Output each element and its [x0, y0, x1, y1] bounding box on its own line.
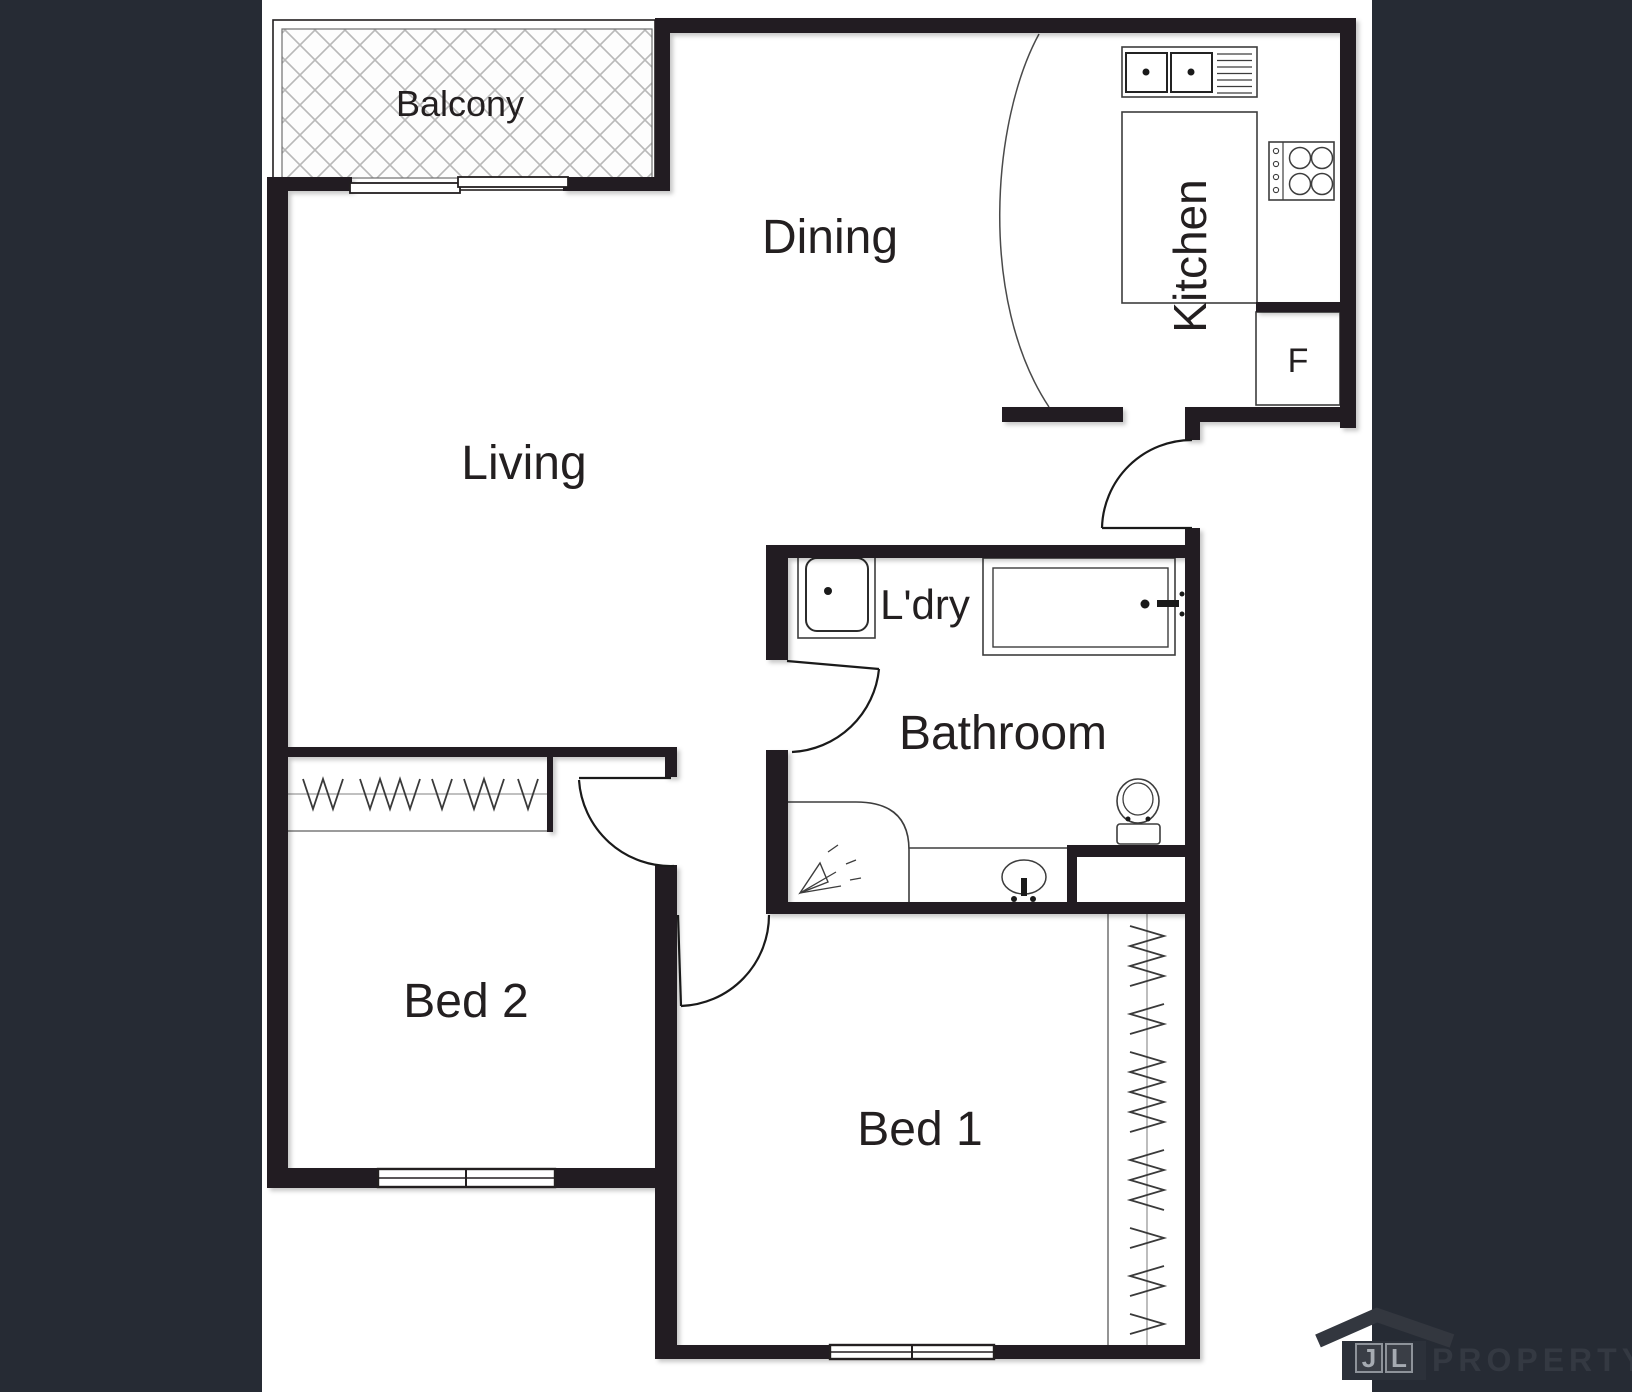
wall-kitchen-door-jamb: [1185, 422, 1200, 440]
wall-above-fridge: [1256, 302, 1356, 312]
wall-bed2-top: [288, 747, 677, 757]
logo-letter-j: J: [1362, 1343, 1376, 1373]
bathroom-niche-void: [1077, 857, 1185, 902]
wall-left: [267, 177, 288, 1188]
dining-label: Dining: [762, 211, 898, 264]
laundry-label: L'dry: [880, 581, 970, 628]
wall-bathroom-left-upper: [766, 545, 788, 660]
wall-right: [1340, 18, 1356, 428]
laundry-trough-icon: [798, 550, 875, 638]
wall-bed2-door-jamb: [665, 747, 677, 777]
bed1-label: Bed 1: [857, 1103, 982, 1156]
floor-plan-canvas: Balcony Dining Kitchen Living L'dry Bath…: [0, 0, 1632, 1392]
wall-bathroom-bed1-right: [1185, 528, 1200, 1359]
wall-top: [655, 18, 1356, 33]
wall-balcony-bottom-right: [563, 177, 670, 191]
kitchen-sink-icon: [1122, 47, 1257, 97]
stove-icon: [1269, 142, 1334, 200]
bed2-window: [378, 1169, 555, 1187]
logo-house-body: [1342, 1341, 1426, 1380]
balcony-label: Balcony: [396, 83, 524, 124]
floorplan-page: Balcony Dining Kitchen Living L'dry Bath…: [0, 0, 1632, 1392]
fridge-label: F: [1288, 342, 1309, 380]
logo-brand-text: PROPERTY: [1432, 1342, 1632, 1378]
logo-letter-l: L: [1391, 1343, 1407, 1373]
wall-bathroom-top: [766, 545, 1190, 558]
bed2-label: Bed 2: [403, 975, 528, 1028]
wall-bed2-bed1-divider: [655, 865, 677, 1359]
living-label: Living: [461, 437, 586, 490]
wall-kitchen-bottom-right: [1185, 407, 1356, 422]
wall-balcony-right: [655, 18, 670, 190]
wall-wardrobe-end: [547, 757, 553, 832]
wall-kitchen-bottom-left: [1002, 407, 1123, 422]
kitchen-label: Kitchen: [1164, 179, 1216, 332]
bed1-window: [830, 1345, 994, 1359]
bathtub-icon: [983, 558, 1185, 655]
toilet-icon: [1117, 779, 1160, 844]
bathroom-label: Bathroom: [899, 707, 1107, 760]
wall-bathroom-left-lower: [766, 750, 788, 914]
